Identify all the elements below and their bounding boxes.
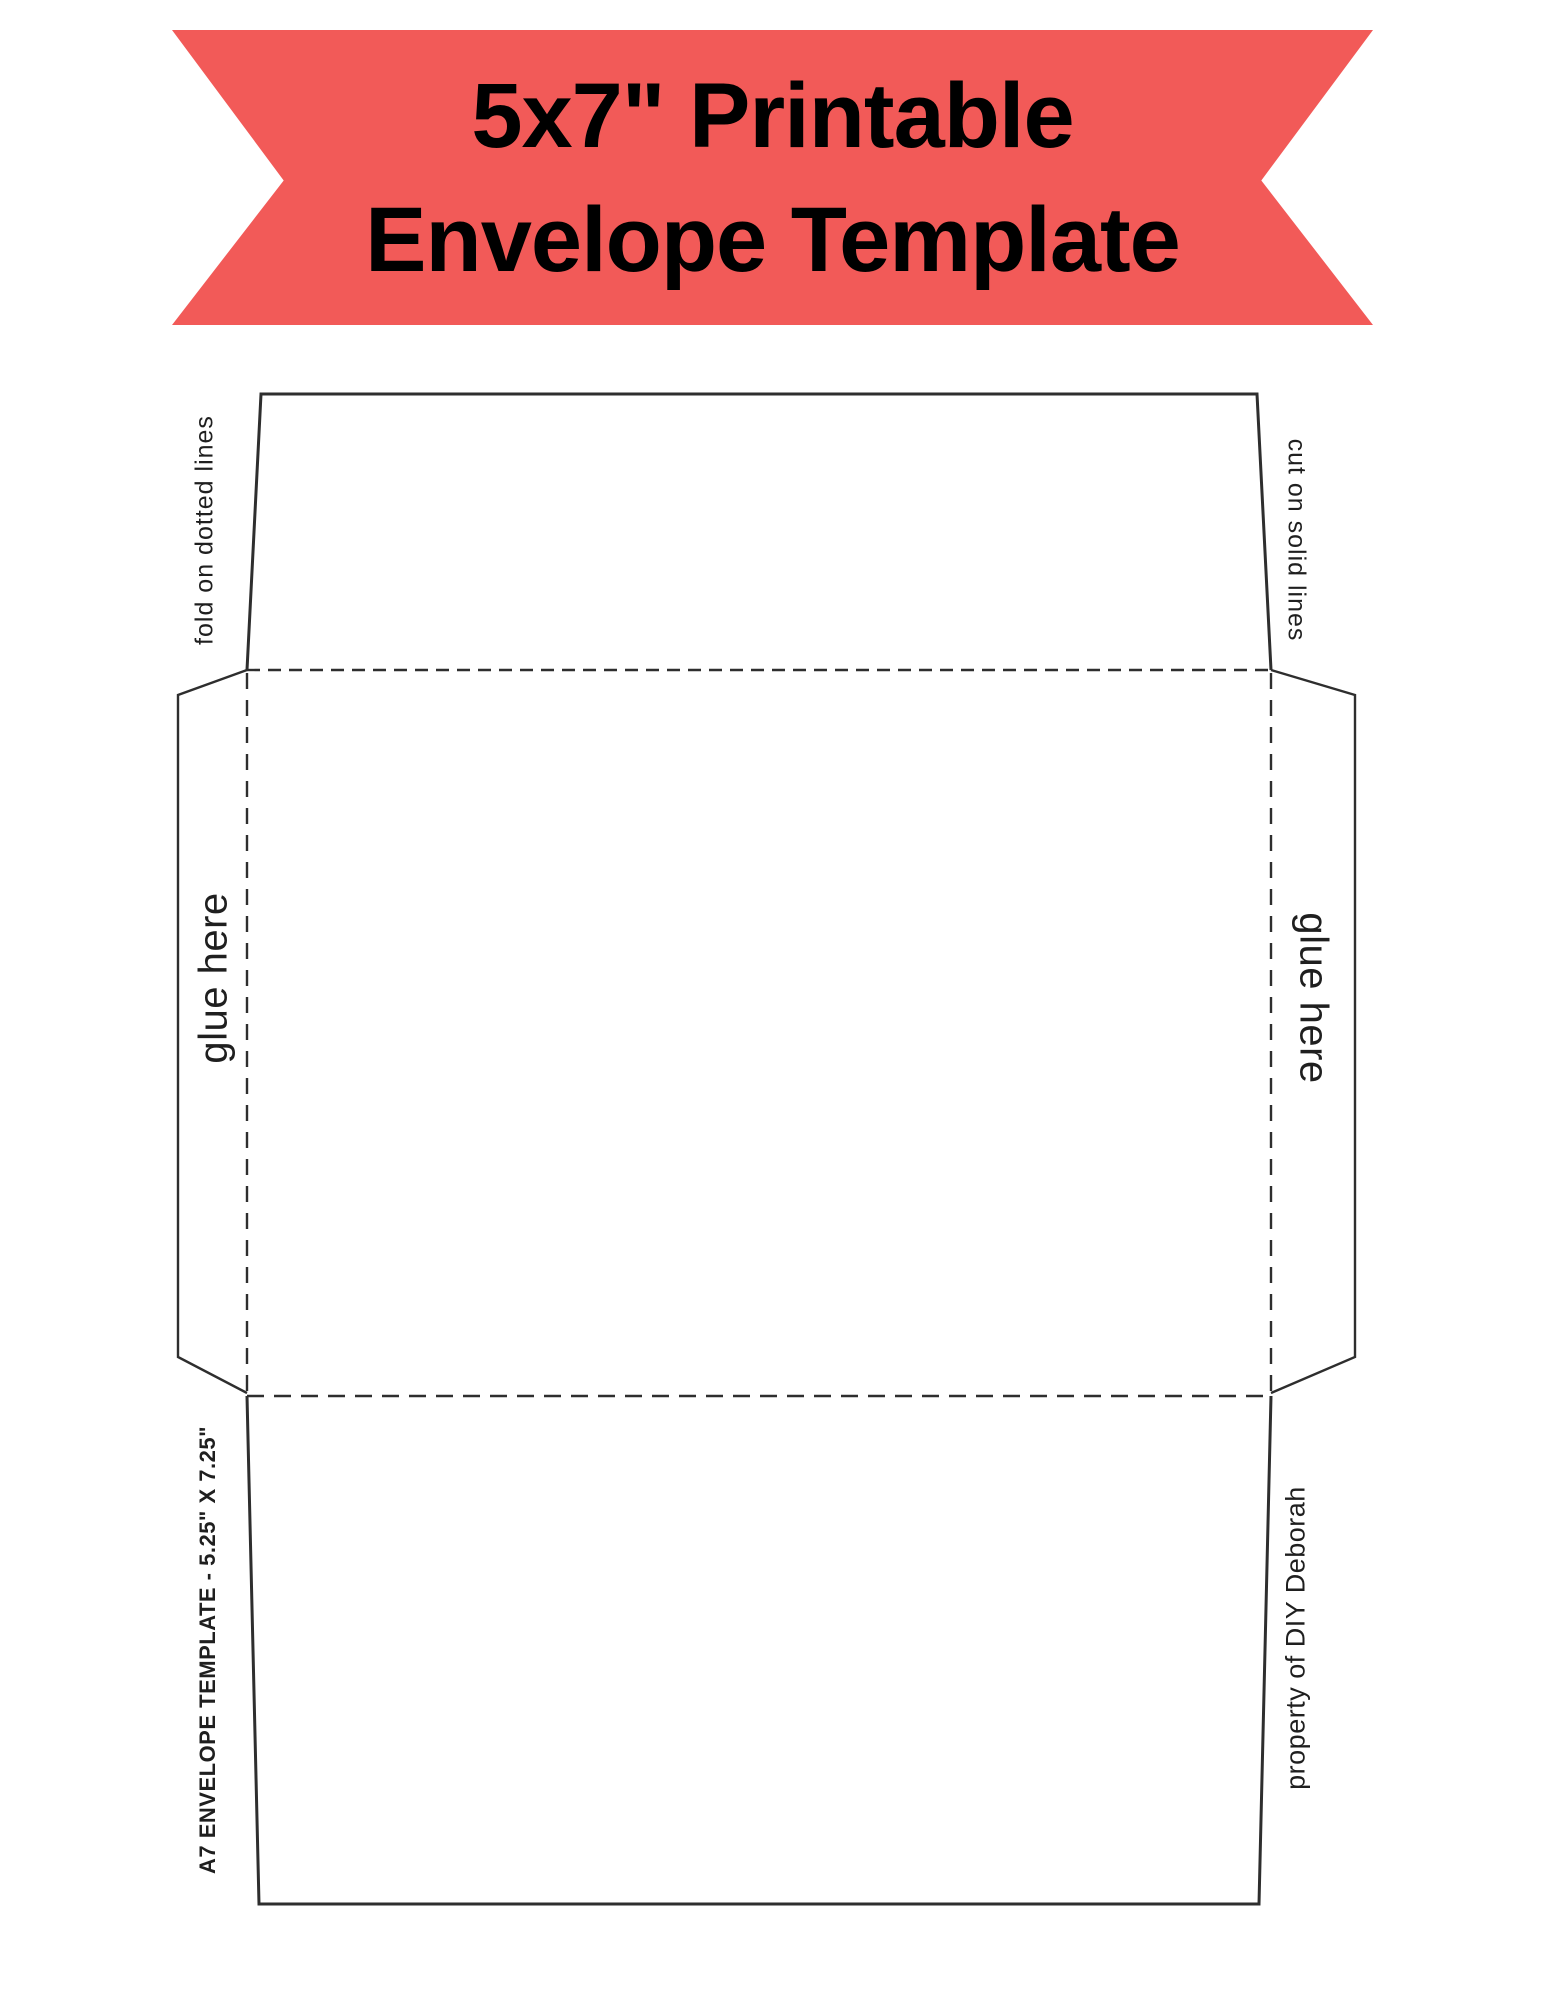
glue-here-right-label: glue here — [1291, 912, 1336, 1083]
envelope-size-info-label: A7 ENVELOPE TEMPLATE - 5.25" X 7.25" — [195, 1426, 221, 1874]
top-flap-outline — [247, 394, 1271, 670]
property-credit-label: property of DIY Deborah — [1281, 1486, 1312, 1790]
bottom-flap-outline — [247, 1396, 1271, 1904]
printable-envelope-template-page: 5x7" Printable Envelope Template fold on… — [0, 0, 1545, 2000]
cut-on-solid-lines-label: cut on solid lines — [1282, 439, 1311, 642]
glue-here-left-label: glue here — [192, 892, 237, 1063]
fold-on-dotted-lines-label: fold on dotted lines — [191, 415, 220, 645]
